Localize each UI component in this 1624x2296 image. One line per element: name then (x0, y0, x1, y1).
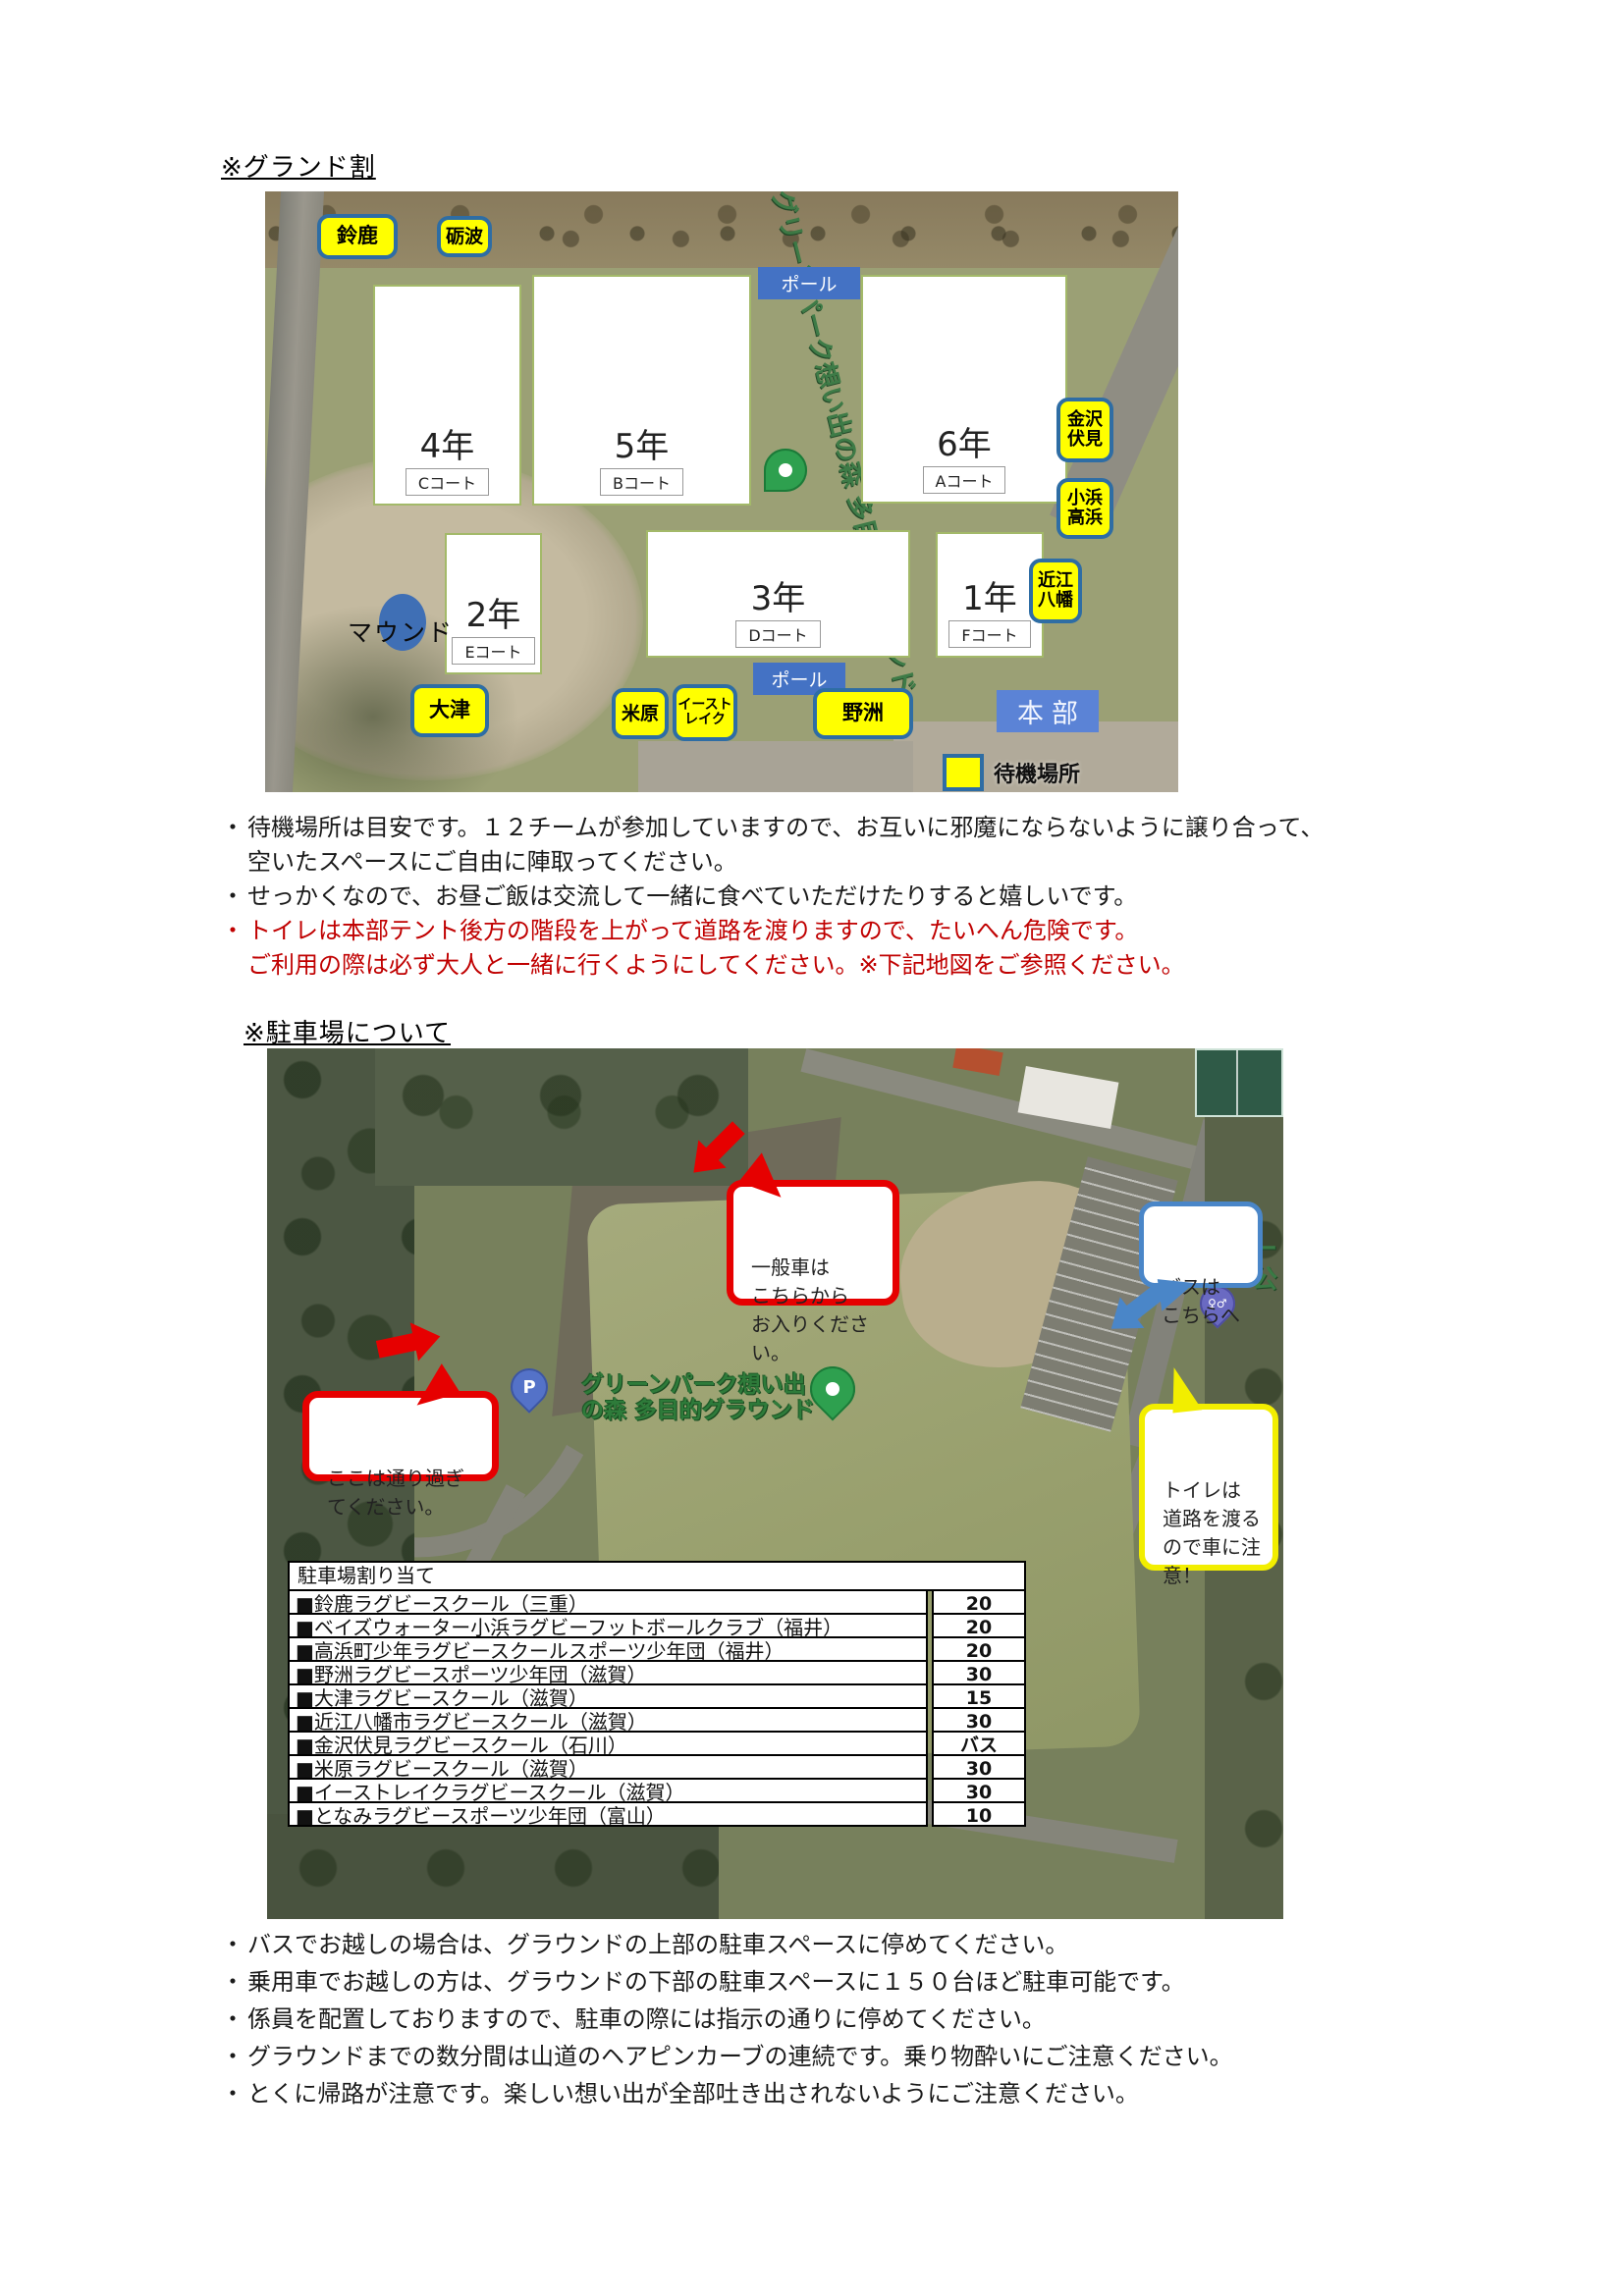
count-cell: 30 (932, 1778, 1026, 1803)
team-tag-east-lake: イースト レイク (673, 684, 737, 741)
grade-label: 5年 (615, 429, 670, 465)
note-item: ・ 乗用車でお越しの方は、グラウンドの下部の駐車スペースに１５０台ほど駐車可能で… (221, 1963, 1478, 2001)
bubble-tail (1168, 1365, 1203, 1414)
team-tag-yasu: 野洲 (813, 688, 913, 739)
bus-bubble: バスは こちらへ (1139, 1201, 1263, 1288)
team-name-cell: ■大津ラグビースクール（滋賀） (288, 1683, 928, 1709)
count-cell: 20 (932, 1589, 1026, 1615)
arrow-shaft (376, 1333, 418, 1359)
note-item-warning: ・ トイレは本部テント後方の階段を上がって道路を渡りますので、たいへん危険です。… (221, 914, 1478, 983)
headquarters-label: 本部 (997, 690, 1099, 732)
pin-body (764, 449, 807, 492)
court-area-3rd-grade: 3年 Dコート (646, 530, 910, 658)
note-item: ・ せっかくなので、お昼ご飯は交流して一緒に食べていただけたりすると嬉しいです。 (221, 880, 1478, 914)
bullet: ・ (221, 1926, 247, 1963)
pavement-area-2 (638, 741, 913, 792)
court-name-tag: Aコート (923, 466, 1006, 494)
court-name-tag: Bコート (600, 468, 683, 496)
parking-pin: P (511, 1368, 548, 1406)
court-name-tag: Dコート (735, 620, 820, 648)
team-name-cell: ■野洲ラグビースポーツ少年団（滋賀） (288, 1660, 928, 1685)
note-item: ・ 係員を配置しておりますので、駐車の際には指示の通りに停めてください。 (221, 2001, 1478, 2038)
team-name-cell: ■イーストレイクラグビースクール（滋賀） (288, 1778, 928, 1803)
standby-legend-label: 待機場所 (994, 757, 1080, 788)
grade-label: 6年 (937, 427, 992, 463)
team-name-cell: ■ベイズウォーター小浜ラグビーフットボールクラブ（福井） (288, 1613, 928, 1638)
table-row: ■鈴鹿ラグビースクール（三重） 20 (288, 1589, 1026, 1615)
count-cell: 30 (932, 1754, 1026, 1780)
team-tag-omi-hachiman: 近江 八幡 (1029, 559, 1082, 623)
ground-location-pin (764, 449, 807, 492)
parking-map: グリーンパーク想い出 の森 多目的グラウンド ー 公 P ♀♂ 一般車は こちら… (267, 1048, 1283, 1919)
note-text: グラウンドまでの数分間は山道のヘアピンカーブの連続です。乗り物酔いにご注意くださ… (247, 2038, 1233, 2075)
count-cell: 20 (932, 1636, 1026, 1662)
bullet: ・ (221, 1963, 247, 2001)
satellite-facility-label: グリーンパーク想い出 の森 多目的グラウンド (581, 1372, 815, 1424)
ground-location-pin (810, 1366, 855, 1412)
count-cell: 30 (932, 1707, 1026, 1733)
toilet-warning-bubble: トイレは 道路を渡る ので車に注 意！ (1139, 1404, 1278, 1571)
bullet: ・ (221, 2038, 247, 2075)
table-row: ■近江八幡市ラグビースクール（滋賀） 30 (288, 1707, 1026, 1733)
building-red-roof (952, 1048, 1002, 1076)
pin-body: P (503, 1361, 556, 1414)
count-cell: 30 (932, 1660, 1026, 1685)
grade-label: 3年 (751, 581, 806, 617)
note-text: 係員を配置しておりますので、駐車の際には指示の通りに停めてください。 (247, 2001, 1046, 2038)
access-road-2 (800, 1048, 1216, 1173)
notice-page: ※グランド割 グリーンパーク想い出の森 多目的グラウンド 4年 Cコート 5年 … (0, 0, 1624, 2296)
court-name-tag: Fコート (948, 620, 1030, 648)
pin-dot (779, 463, 792, 477)
team-tag-kanazawa-fushimi: 金沢 伏見 (1056, 398, 1113, 462)
team-name-cell: ■高浜町少年ラグビースクールスポーツ少年団（福井） (288, 1636, 928, 1662)
table-row: ■イーストレイクラグビースクール（滋賀） 30 (288, 1778, 1026, 1803)
pin-dot (823, 1379, 842, 1399)
mound-label: マウンド (348, 614, 454, 649)
pass-through-bubble: ここは通り過ぎ てください。 (302, 1391, 499, 1481)
note-text: トイレは本部テント後方の階段を上がって道路を渡りますので、たいへん危険です。 ご… (247, 914, 1185, 983)
tennis-court (1195, 1048, 1283, 1117)
table-row: ■高浜町少年ラグビースクールスポーツ少年団（福井） 20 (288, 1636, 1026, 1662)
court-area-1st-grade: 1年 Fコート (936, 532, 1044, 658)
team-tag-maibara: 米原 (612, 688, 669, 739)
parking-table-header: 駐車場割り当て (288, 1561, 1026, 1591)
team-name-cell: ■となみラグビースポーツ少年団（富山） (288, 1801, 928, 1827)
count-cell: 20 (932, 1613, 1026, 1638)
general-car-bubble: 一般車は こちらから お入りください。 (727, 1180, 899, 1306)
grade-label: 2年 (466, 598, 521, 634)
court-area-2nd-grade: 2年 Eコート (445, 533, 542, 674)
pole-label-top: ポール (758, 267, 860, 299)
trees-band (265, 191, 1178, 268)
bubble-text: ここは通り過ぎ てください。 (327, 1467, 464, 1519)
court-area-4th-grade: 4年 Cコート (373, 285, 521, 506)
parking-pin-letter: P (522, 1377, 535, 1398)
note-item: ・ 待機場所は目安です。１２チームが参加していますので、お互いに邪魔にならないよ… (221, 811, 1478, 880)
count-cell: バス (932, 1731, 1026, 1756)
parking-allocation-table: 駐車場割り当て ■鈴鹿ラグビースクール（三重） 20 ■ベイズウォーター小浜ラグ… (288, 1561, 1026, 1827)
bullet: ・ (221, 880, 247, 914)
table-row: ■となみラグビースポーツ少年団（富山） 10 (288, 1801, 1026, 1827)
ground-allocation-map: グリーンパーク想い出の森 多目的グラウンド 4年 Cコート 5年 Bコート 6年… (265, 191, 1178, 792)
grade-label: 4年 (420, 429, 475, 465)
count-cell: 10 (932, 1801, 1026, 1827)
note-text: 乗用車でお越しの方は、グラウンドの下部の駐車スペースに１５０台ほど駐車可能です。 (247, 1963, 1185, 2001)
team-tag-otsu: 大津 (410, 684, 489, 737)
parking-notes: ・ バスでお越しの場合は、グラウンドの上部の駐車スペースに停めてください。 ・ … (221, 1926, 1478, 2112)
team-name-cell: ■鈴鹿ラグビースクール（三重） (288, 1589, 928, 1615)
court-area-5th-grade: 5年 Bコート (532, 275, 751, 506)
bullet: ・ (221, 811, 247, 845)
table-row: ■米原ラグビースクール（滋賀） 30 (288, 1754, 1026, 1780)
court-name-tag: Cコート (406, 468, 489, 496)
forest-bottom (267, 1814, 719, 1919)
pin-body (800, 1357, 864, 1420)
note-text: とくに帰路が注意です。楽しい想い出が全部吐き出されないようにご注意ください。 (247, 2075, 1139, 2112)
table-row: ■ベイズウォーター小浜ラグビーフットボールクラブ（福井） 20 (288, 1613, 1026, 1638)
team-name-cell: ■金沢伏見ラグビースクール（石川） (288, 1731, 928, 1756)
table-row: ■金沢伏見ラグビースクール（石川） バス (288, 1731, 1026, 1756)
bullet: ・ (221, 2075, 247, 2112)
team-tag-obama-takahama: 小浜 高浜 (1056, 478, 1113, 539)
note-item: ・ とくに帰路が注意です。楽しい想い出が全部吐き出されないようにご注意ください。 (221, 2075, 1478, 2112)
parking-section-title: ※駐車場について (244, 1013, 451, 1049)
note-text: バスでお越しの場合は、グラウンドの上部の駐車スペースに停めてください。 (247, 1926, 1068, 1963)
court-name-tag: Eコート (452, 637, 534, 665)
standby-legend-swatch (943, 754, 984, 791)
note-text: 待機場所は目安です。１２チームが参加していますので、お互いに邪魔にならないように… (247, 811, 1324, 880)
note-item: ・ グラウンドまでの数分間は山道のヘアピンカーブの連続です。乗り物酔いにご注意く… (221, 2038, 1478, 2075)
team-name-cell: ■近江八幡市ラグビースクール（滋賀） (288, 1707, 928, 1733)
count-cell: 15 (932, 1683, 1026, 1709)
court-area-6th-grade: 6年 Aコート (861, 275, 1067, 504)
bullet: ・ (221, 914, 247, 948)
team-tag-tonami: 砺波 (437, 216, 492, 257)
ground-section-title: ※グランド割 (221, 147, 376, 184)
team-name-cell: ■米原ラグビースクール（滋賀） (288, 1754, 928, 1780)
note-item: ・ バスでお越しの場合は、グラウンドの上部の駐車スペースに停めてください。 (221, 1926, 1478, 1963)
note-text: せっかくなので、お昼ご飯は交流して一緒に食べていただけたりすると嬉しいです。 (247, 880, 1137, 914)
bullet: ・ (221, 2001, 247, 2038)
team-tag-suzuka: 鈴鹿 (317, 214, 398, 259)
table-row: ■野洲ラグビースポーツ少年団（滋賀） 30 (288, 1660, 1026, 1685)
table-row: ■大津ラグビースクール（滋賀） 15 (288, 1683, 1026, 1709)
ground-notes: ・ 待機場所は目安です。１２チームが参加していますので、お互いに邪魔にならないよ… (221, 811, 1478, 983)
grade-label: 1年 (962, 581, 1017, 617)
